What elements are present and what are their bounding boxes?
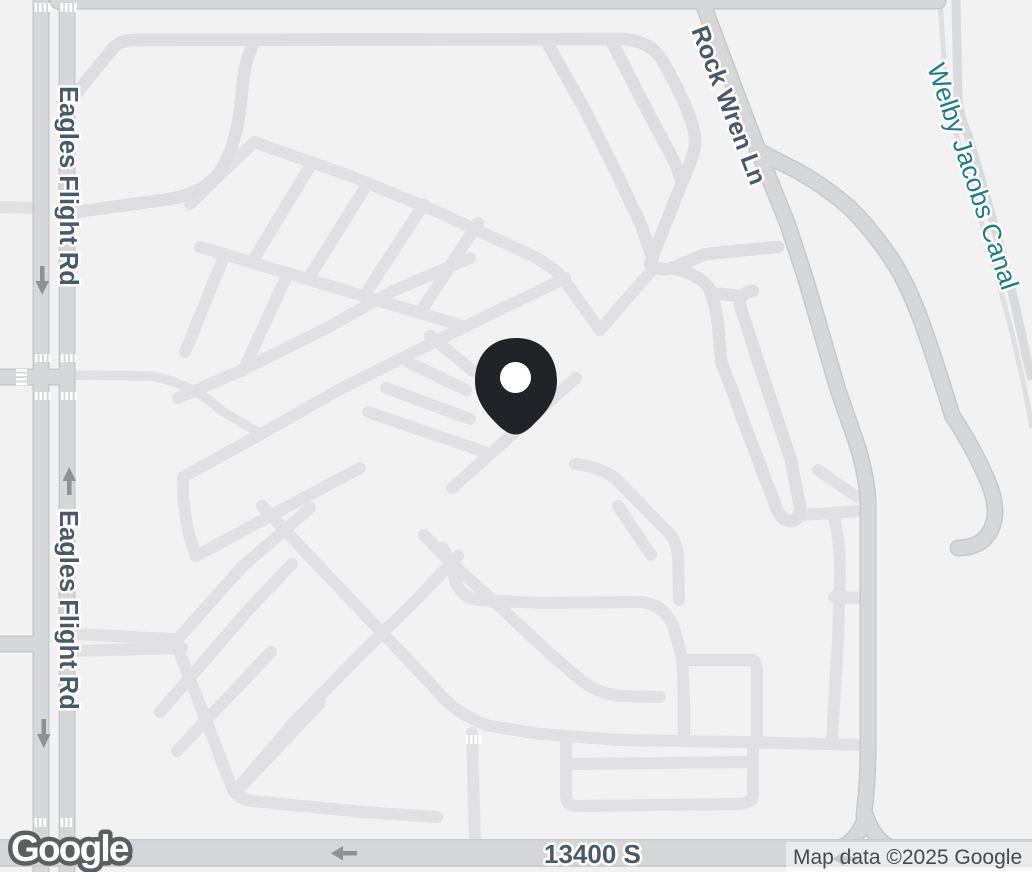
- svg-text:13400 S: 13400 S: [544, 839, 641, 869]
- svg-text:Eagles Flight Rd: Eagles Flight Rd: [54, 510, 82, 710]
- svg-text:Eagles Flight Rd: Eagles Flight Rd: [54, 86, 82, 286]
- svg-text:Map data ©2025 Google: Map data ©2025 Google: [793, 846, 1022, 869]
- svg-text:Google: Google: [11, 828, 129, 869]
